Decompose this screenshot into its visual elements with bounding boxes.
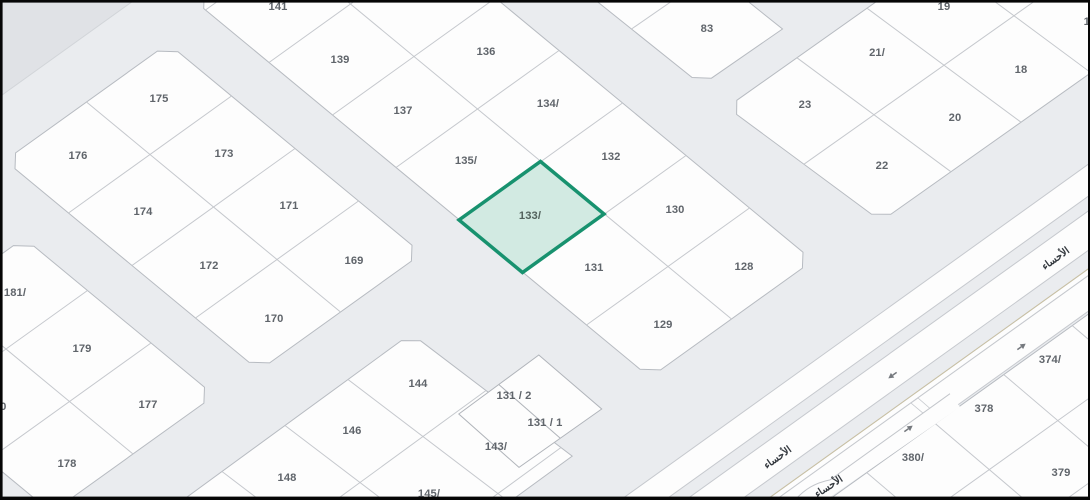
svg-text:175: 175 [150,93,169,105]
svg-text:22: 22 [876,160,889,172]
svg-text:181/: 181/ [4,287,26,299]
svg-text:379: 379 [1052,467,1071,479]
svg-text:380/: 380/ [902,452,924,464]
svg-text:131 / 2: 131 / 2 [497,390,532,402]
svg-text:18: 18 [1015,64,1028,76]
svg-text:374/: 374/ [1039,354,1061,366]
svg-text:177: 177 [139,399,158,411]
svg-text:135/: 135/ [455,155,477,167]
svg-text:178: 178 [58,458,77,470]
svg-text:173: 173 [215,148,234,160]
svg-text:83: 83 [701,23,714,35]
svg-text:169: 169 [345,255,364,267]
svg-text:139: 139 [331,54,350,66]
svg-text:170: 170 [265,313,284,325]
svg-text:171: 171 [280,200,299,212]
svg-text:143/: 143/ [485,441,507,453]
svg-text:176: 176 [69,150,88,162]
svg-text:146: 146 [343,425,362,437]
svg-text:19: 19 [938,1,951,13]
svg-text:172: 172 [200,260,219,272]
svg-text:20: 20 [949,112,962,124]
svg-text:130: 130 [666,204,685,216]
svg-text:23: 23 [799,99,812,111]
svg-text:131 / 1: 131 / 1 [528,417,563,429]
svg-text:128: 128 [735,261,754,273]
svg-text:144: 144 [409,378,429,390]
svg-text:137: 137 [394,105,413,117]
svg-text:378: 378 [975,403,994,415]
svg-text:134/: 134/ [537,98,559,110]
svg-text:179: 179 [73,343,92,355]
svg-text:136: 136 [477,46,496,58]
svg-text:21/: 21/ [869,47,885,59]
svg-text:174: 174 [134,206,154,218]
svg-text:129: 129 [654,319,673,331]
svg-text:141: 141 [269,1,288,13]
svg-text:133/: 133/ [519,210,541,222]
svg-text:148: 148 [278,472,297,484]
svg-text:132: 132 [602,151,621,163]
svg-text:131: 131 [585,262,604,274]
